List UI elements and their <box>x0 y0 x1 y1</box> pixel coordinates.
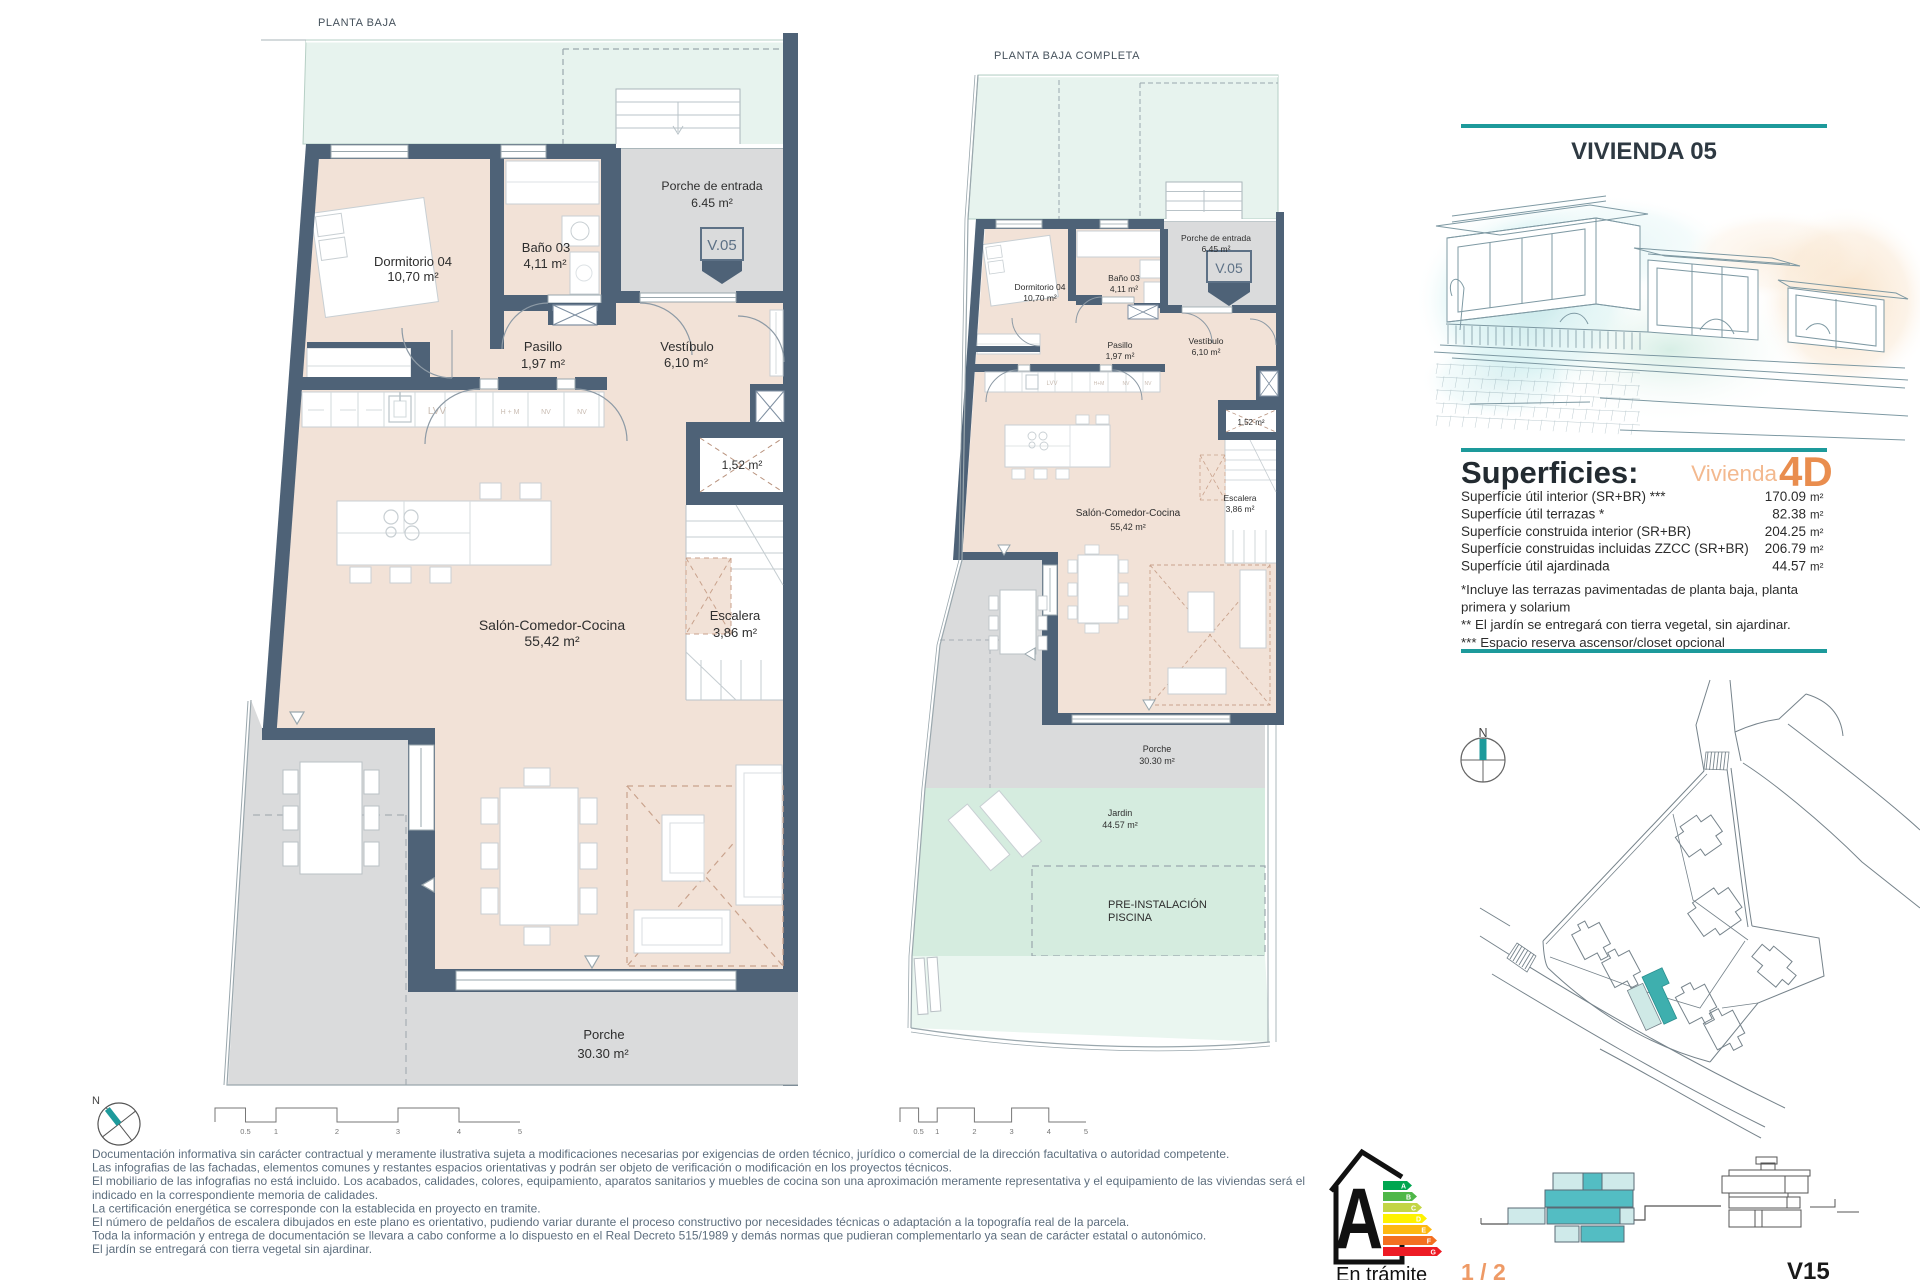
svg-text:Salón-Comedor-Cocina: Salón-Comedor-Cocina <box>1076 508 1181 519</box>
svg-text:m²: m² <box>1810 527 1824 539</box>
svg-text:m²: m² <box>1810 562 1824 574</box>
svg-text:m²: m² <box>1810 509 1824 521</box>
svg-text:4,11 m²: 4,11 m² <box>1110 284 1138 294</box>
svg-text:LVV: LVV <box>1047 381 1058 387</box>
svg-text:El jardín se entregará con tie: El jardín se entregará con tierra vegeta… <box>92 1242 372 1256</box>
svg-text:La certificación energética se: La certificación energética se correspon… <box>92 1201 541 1215</box>
svg-text:6,10 m²: 6,10 m² <box>664 355 709 370</box>
svg-text:H + M: H + M <box>501 409 520 416</box>
svg-text:82.38: 82.38 <box>1772 506 1806 521</box>
svg-text:30.30 m²: 30.30 m² <box>577 1046 629 1061</box>
svg-text:Porche: Porche <box>583 1027 624 1042</box>
svg-text:PRE-INSTALACIÓN: PRE-INSTALACIÓN <box>1108 898 1207 911</box>
svg-text:4,11 m²: 4,11 m² <box>523 256 567 271</box>
svg-text:4: 4 <box>1047 1127 1051 1136</box>
svg-text:1: 1 <box>274 1127 278 1136</box>
svg-text:C: C <box>1411 1206 1416 1213</box>
svg-text:Baño 03: Baño 03 <box>522 240 570 255</box>
svg-text:Superfície construida interior: Superfície construida interior (SR+BR) <box>1461 524 1691 539</box>
svg-text:D: D <box>1416 1217 1421 1224</box>
svg-text:H+M: H+M <box>1094 381 1105 387</box>
svg-text:6.45 m²: 6.45 m² <box>1202 244 1231 254</box>
svg-text:m²: m² <box>1810 544 1824 556</box>
svg-text:0.5: 0.5 <box>240 1127 250 1136</box>
svg-text:Vestíbulo: Vestíbulo <box>660 339 714 354</box>
svg-text:V.05: V.05 <box>1215 260 1243 276</box>
svg-text:Superficies:: Superficies: <box>1461 455 1638 490</box>
svg-text:2: 2 <box>972 1127 976 1136</box>
svg-text:F: F <box>1427 1239 1432 1246</box>
svg-text:E: E <box>1421 1228 1426 1235</box>
svg-text:V15: V15 <box>1787 1258 1830 1280</box>
svg-text:Superfície útil terrazas *: Superfície útil terrazas * <box>1461 506 1605 521</box>
svg-text:PLANTA BAJA COMPLETA: PLANTA BAJA COMPLETA <box>994 50 1140 62</box>
svg-text:2: 2 <box>335 1127 339 1136</box>
svg-text:NV: NV <box>1145 381 1153 387</box>
svg-text:170.09: 170.09 <box>1765 489 1806 504</box>
svg-text:1,97 m²: 1,97 m² <box>521 356 566 371</box>
svg-text:1,52 m²: 1,52 m² <box>722 458 763 472</box>
svg-text:Pasillo: Pasillo <box>1107 340 1132 350</box>
svg-text:1 / 2: 1 / 2 <box>1461 1259 1506 1280</box>
svg-text:3: 3 <box>396 1127 400 1136</box>
svg-text:G: G <box>1431 1250 1437 1257</box>
svg-text:204.25: 204.25 <box>1765 524 1806 539</box>
svg-text:1: 1 <box>935 1127 939 1136</box>
svg-text:0.5: 0.5 <box>913 1127 923 1136</box>
svg-text:Escalera: Escalera <box>1223 493 1256 503</box>
svg-text:1,52 m²: 1,52 m² <box>1237 418 1264 427</box>
svg-text:El número de peldaños de escal: El número de peldaños de escalera dibuja… <box>92 1215 1129 1229</box>
svg-text:55,42 m²: 55,42 m² <box>524 633 580 649</box>
svg-text:Salón-Comedor-Cocina: Salón-Comedor-Cocina <box>479 617 626 633</box>
svg-text:Porche de entrada: Porche de entrada <box>1181 233 1251 243</box>
svg-text:206.79: 206.79 <box>1765 541 1806 556</box>
svg-text:55,42 m²: 55,42 m² <box>1110 522 1146 532</box>
svg-text:4D: 4D <box>1779 448 1833 495</box>
svg-text:Dormitorio 04: Dormitorio 04 <box>1014 282 1065 292</box>
svg-text:Dormitorio 04: Dormitorio 04 <box>374 254 452 269</box>
svg-text:44.57: 44.57 <box>1772 559 1806 574</box>
svg-text:VIVIENDA 05: VIVIENDA 05 <box>1571 138 1717 165</box>
svg-text:A: A <box>1335 1171 1383 1267</box>
svg-text:Las infografias de las fachada: Las infografias de las fachadas, element… <box>92 1161 952 1175</box>
svg-text:Vestíbulo: Vestíbulo <box>1189 336 1224 346</box>
svg-text:*** Espacio reserva ascensor/c: *** Espacio reserva ascensor/closet opci… <box>1461 635 1725 650</box>
svg-text:30.30 m²: 30.30 m² <box>1139 756 1175 766</box>
svg-text:PLANTA BAJA: PLANTA BAJA <box>318 17 397 29</box>
svg-text:*Incluye las terrazas paviment: *Incluye las terrazas pavimentadas de pl… <box>1461 582 1799 597</box>
svg-text:NV: NV <box>1123 381 1131 387</box>
svg-text:NV: NV <box>577 409 587 416</box>
svg-text:10,70 m²: 10,70 m² <box>387 269 439 284</box>
svg-text:primera y solarium: primera y solarium <box>1461 600 1570 615</box>
svg-text:Documentación informativa sin: Documentación informativa sin carácter c… <box>92 1147 1229 1161</box>
svg-text:1,97 m²: 1,97 m² <box>1106 351 1135 361</box>
svg-text:Escalera: Escalera <box>710 608 761 623</box>
svg-text:5: 5 <box>518 1127 522 1136</box>
svg-text:V.05: V.05 <box>707 237 736 254</box>
svg-text:El mobiliario de las infografi: El mobiliario de las infografias no está… <box>92 1174 1305 1188</box>
svg-text:Vivienda: Vivienda <box>1691 461 1777 486</box>
svg-text:** El jardín se entregará con: ** El jardín se entregará con tierra veg… <box>1461 617 1791 632</box>
svg-text:B: B <box>1406 1195 1411 1202</box>
svg-text:10,70 m²: 10,70 m² <box>1023 293 1057 303</box>
svg-text:Superfície útil ajardinada: Superfície útil ajardinada <box>1461 559 1610 574</box>
svg-text:Superfície útil interior (SR+B: Superfície útil interior (SR+BR) *** <box>1461 489 1666 504</box>
svg-text:3,86 m²: 3,86 m² <box>1226 504 1255 514</box>
svg-text:En trámite: En trámite <box>1336 1264 1427 1280</box>
svg-text:NV: NV <box>541 409 551 416</box>
svg-text:4: 4 <box>457 1127 461 1136</box>
svg-text:3,86 m²: 3,86 m² <box>713 625 758 640</box>
svg-text:A: A <box>1401 1184 1406 1191</box>
svg-text:6,10 m²: 6,10 m² <box>1192 347 1221 357</box>
svg-text:Jardin: Jardin <box>1108 808 1133 818</box>
svg-text:m²: m² <box>1810 492 1824 504</box>
svg-text:Pasillo: Pasillo <box>524 339 562 354</box>
svg-text:Porche de entrada: Porche de entrada <box>661 179 762 193</box>
svg-text:Porche: Porche <box>1143 744 1172 754</box>
svg-text:5: 5 <box>1084 1127 1088 1136</box>
svg-text:44.57 m²: 44.57 m² <box>1102 820 1138 830</box>
svg-text:6.45 m²: 6.45 m² <box>691 196 733 210</box>
svg-text:Baño 03: Baño 03 <box>1108 273 1140 283</box>
svg-text:N: N <box>92 1095 100 1107</box>
svg-text:PISCINA: PISCINA <box>1108 912 1153 924</box>
svg-text:3: 3 <box>1010 1127 1014 1136</box>
svg-text:Superfície construidas incluid: Superfície construidas incluidas ZZCC (S… <box>1461 541 1749 556</box>
svg-text:Toda la información y entrega: Toda la información y entrega de documen… <box>92 1229 1206 1243</box>
svg-text:LVV: LVV <box>428 406 446 417</box>
svg-text:indicado en la correspondiente: indicado en la correspondiente memoria d… <box>92 1188 378 1202</box>
